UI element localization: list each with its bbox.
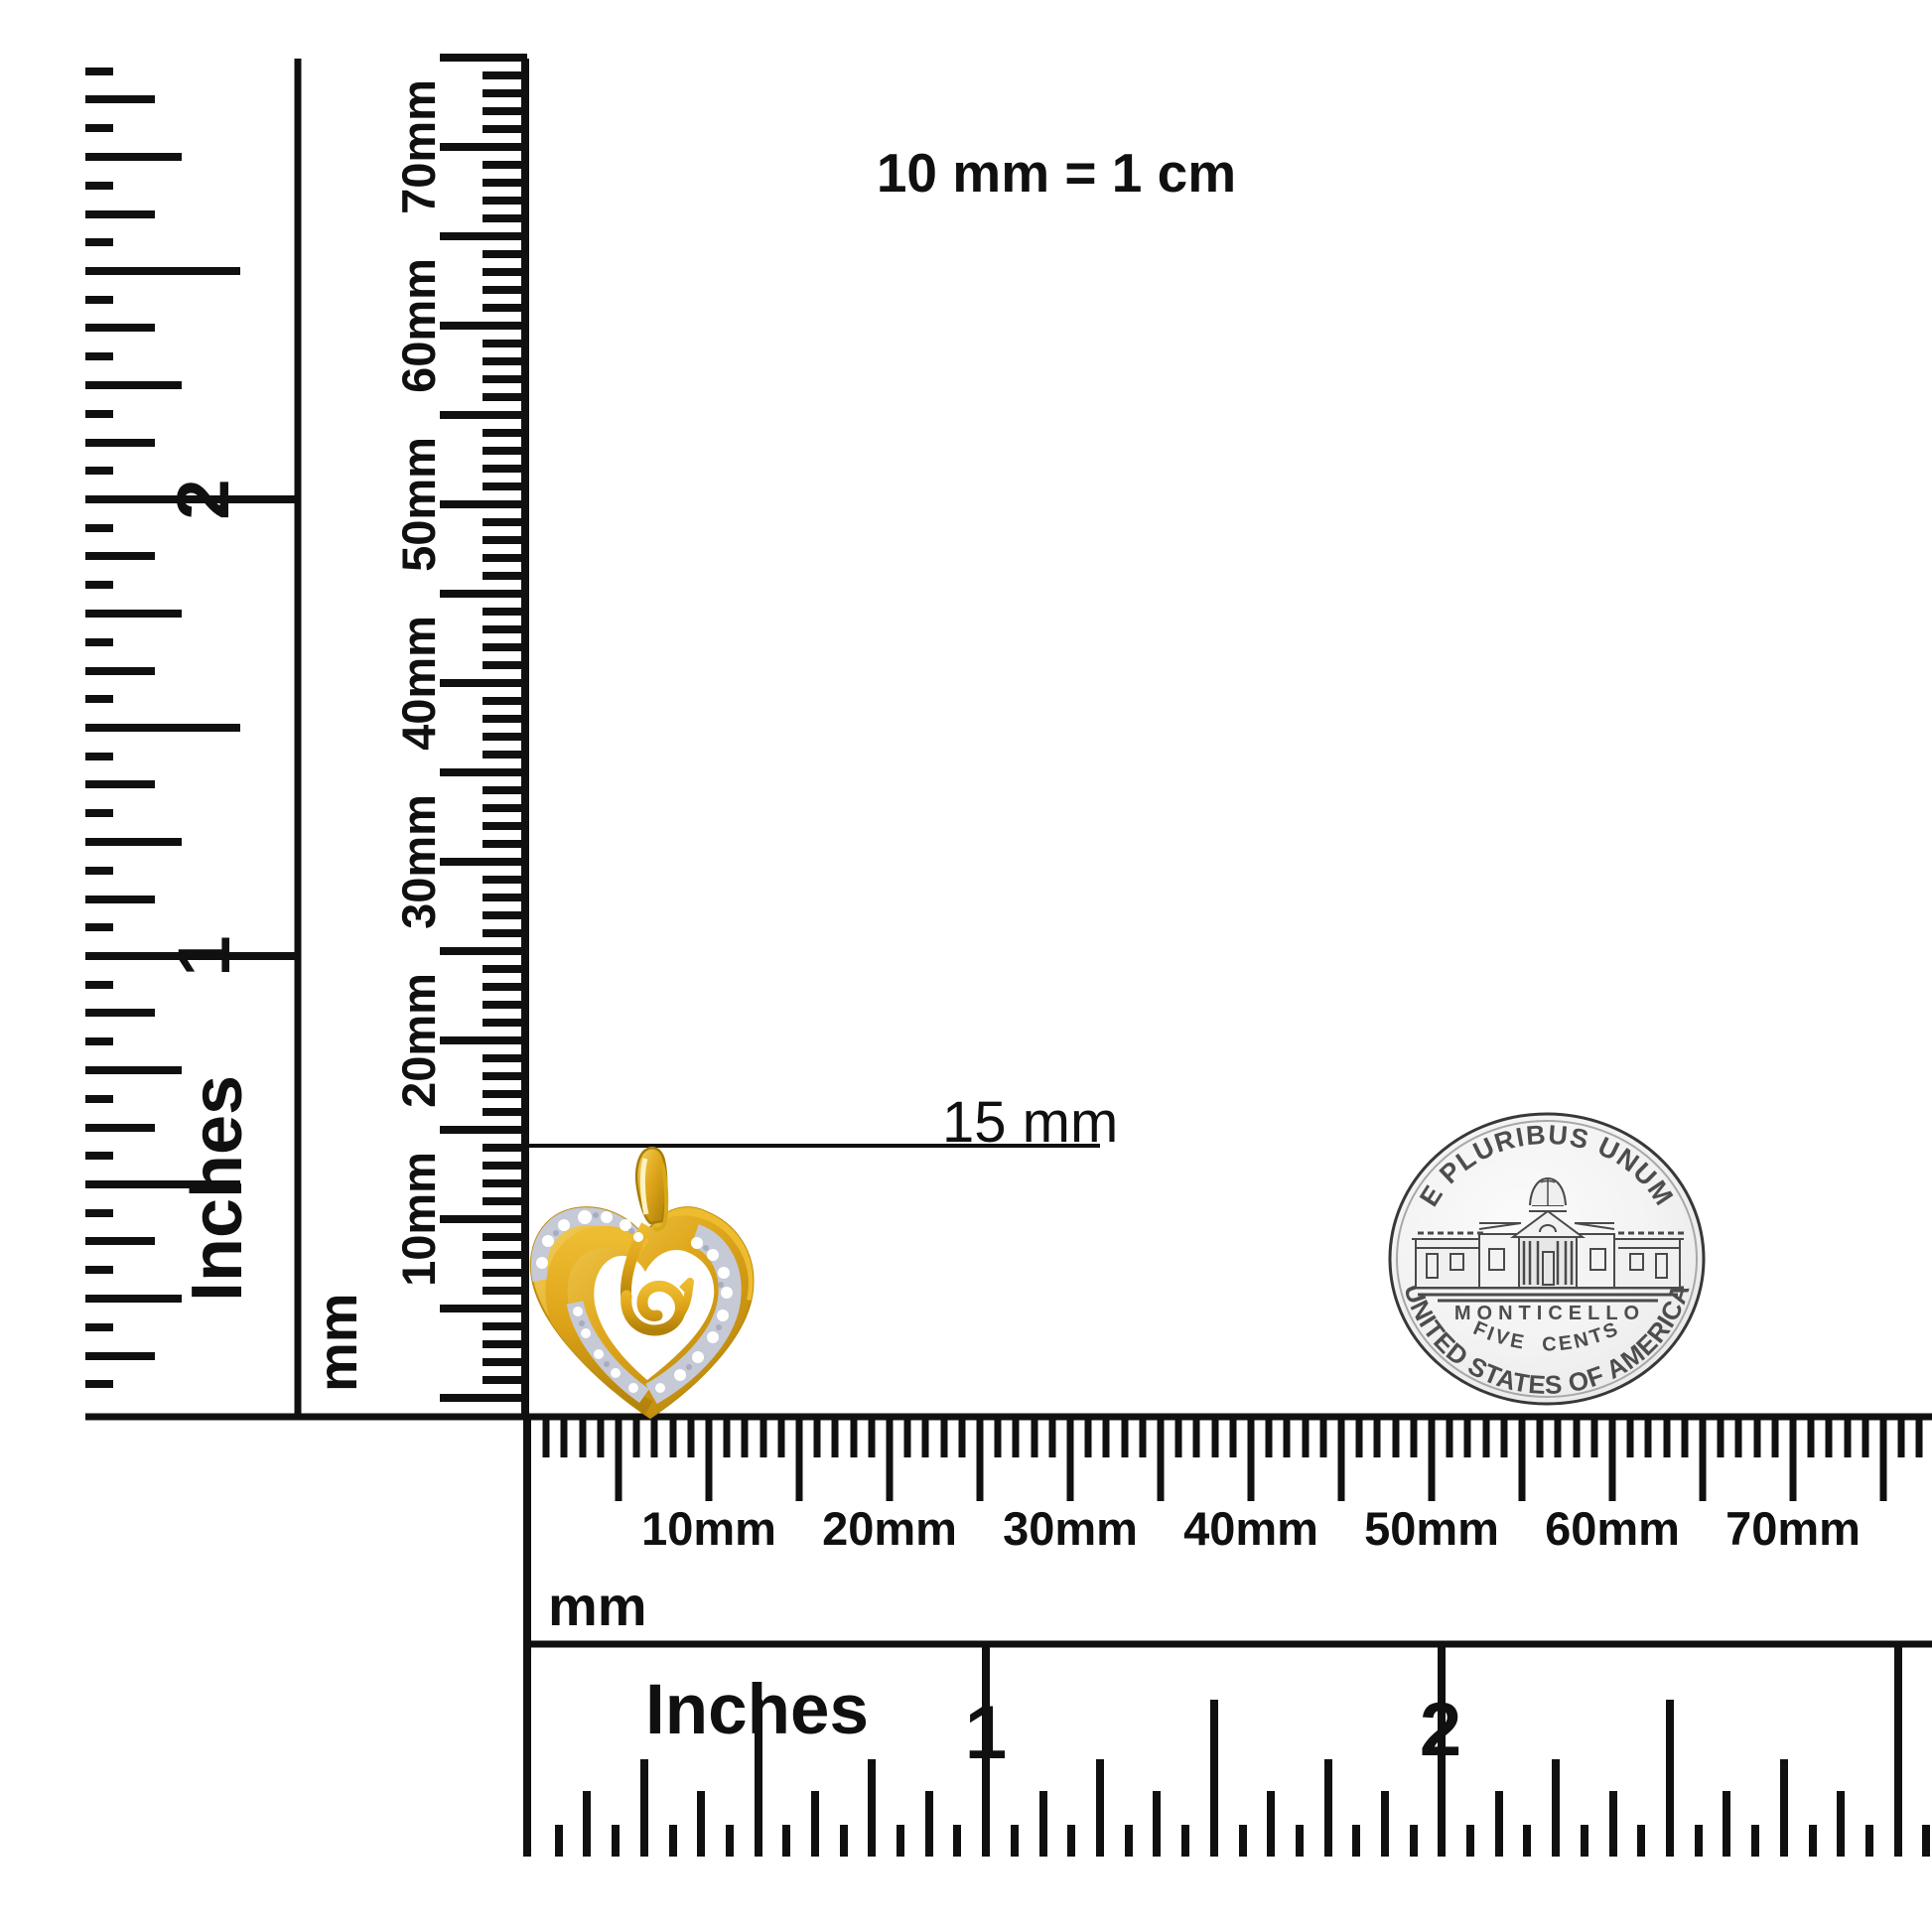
svg-text:20mm: 20mm xyxy=(822,1502,957,1555)
svg-text:70mm: 70mm xyxy=(392,79,445,214)
svg-text:70mm: 70mm xyxy=(1725,1502,1861,1555)
svg-text:1: 1 xyxy=(965,1691,1007,1775)
svg-text:50mm: 50mm xyxy=(392,437,445,572)
svg-text:10mm: 10mm xyxy=(392,1152,445,1287)
svg-text:1: 1 xyxy=(163,935,245,976)
svg-text:2: 2 xyxy=(1420,1688,1461,1772)
svg-text:50mm: 50mm xyxy=(1364,1502,1499,1555)
svg-text:20mm: 20mm xyxy=(392,973,445,1108)
svg-text:Inches: Inches xyxy=(178,1075,257,1302)
svg-text:10 mm = 1 cm: 10 mm = 1 cm xyxy=(877,142,1236,204)
svg-text:10mm: 10mm xyxy=(641,1502,776,1555)
svg-text:15 mm: 15 mm xyxy=(942,1090,1118,1155)
svg-text:mm: mm xyxy=(306,1293,368,1392)
svg-text:mm: mm xyxy=(548,1575,647,1637)
svg-text:40mm: 40mm xyxy=(1183,1502,1318,1555)
svg-text:60mm: 60mm xyxy=(1545,1502,1680,1555)
svg-text:40mm: 40mm xyxy=(392,616,445,751)
svg-text:2: 2 xyxy=(162,479,244,519)
svg-text:Inches: Inches xyxy=(645,1671,869,1749)
svg-text:30mm: 30mm xyxy=(1003,1502,1138,1555)
svg-text:60mm: 60mm xyxy=(392,258,445,393)
svg-text:30mm: 30mm xyxy=(392,794,445,929)
